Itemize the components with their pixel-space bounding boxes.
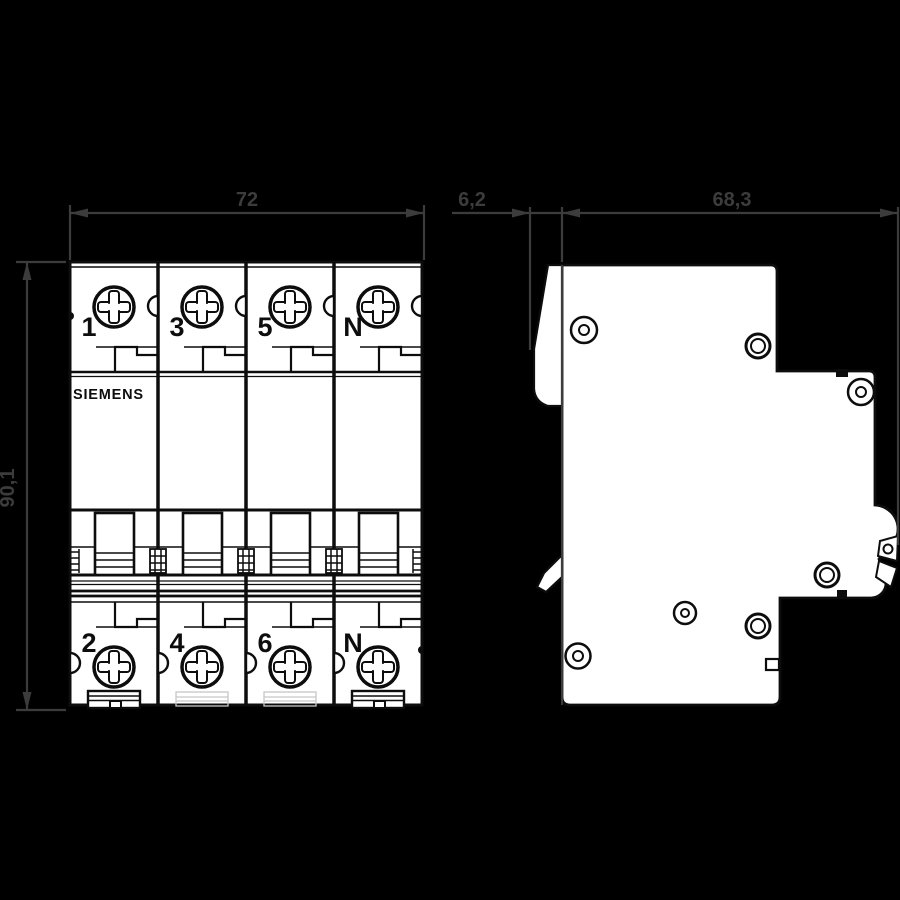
front-view: 1 3 5 N SIEMENS — [70, 262, 422, 708]
rear-notch — [837, 590, 847, 598]
rear-notch — [836, 369, 848, 377]
screw-icon — [94, 287, 134, 327]
pole-label: N — [343, 312, 363, 342]
dimension-label-depth: 68,3 — [713, 189, 752, 211]
pole-label: 5 — [257, 312, 272, 342]
screw-icon — [358, 647, 398, 687]
handle-clip — [326, 549, 342, 573]
din-claw-lower — [537, 555, 562, 592]
dimension-label-height: 90,1 — [0, 469, 19, 508]
clip-tab — [766, 659, 779, 670]
toggle-handle — [271, 513, 310, 575]
latch-mechanism — [876, 536, 898, 587]
screw-icon — [358, 287, 398, 327]
side-body-outline — [562, 265, 898, 705]
screw-icon — [270, 647, 310, 687]
screw-icon — [270, 287, 310, 327]
dimension-width: 72 — [70, 189, 424, 260]
pole-label: N — [343, 628, 363, 658]
pole-label: 2 — [81, 628, 96, 658]
brand-logo: SIEMENS — [73, 387, 144, 403]
handle-clip — [238, 549, 254, 573]
din-claw-upper — [534, 265, 562, 406]
screw-icon — [182, 287, 222, 327]
drawing-canvas: 1 3 5 N SIEMENS — [0, 0, 900, 900]
toggle-handle — [95, 513, 134, 575]
toggle-handle — [359, 513, 398, 575]
dimension-label-width: 72 — [236, 189, 258, 211]
pole-label: 6 — [257, 628, 272, 658]
screw-icon — [94, 647, 134, 687]
dimension-label-rail-offset: 6,2 — [458, 189, 486, 211]
dimension-drawing: 1 3 5 N SIEMENS — [0, 0, 900, 900]
toggle-handle — [183, 513, 222, 575]
screw-icon — [182, 647, 222, 687]
handle-clip — [150, 549, 166, 573]
pole-label: 3 — [169, 312, 184, 342]
dimension-height: 90,1 — [0, 262, 66, 710]
side-view — [534, 265, 898, 705]
pole-label: 4 — [169, 628, 184, 658]
pole-label: 1 — [81, 312, 96, 342]
